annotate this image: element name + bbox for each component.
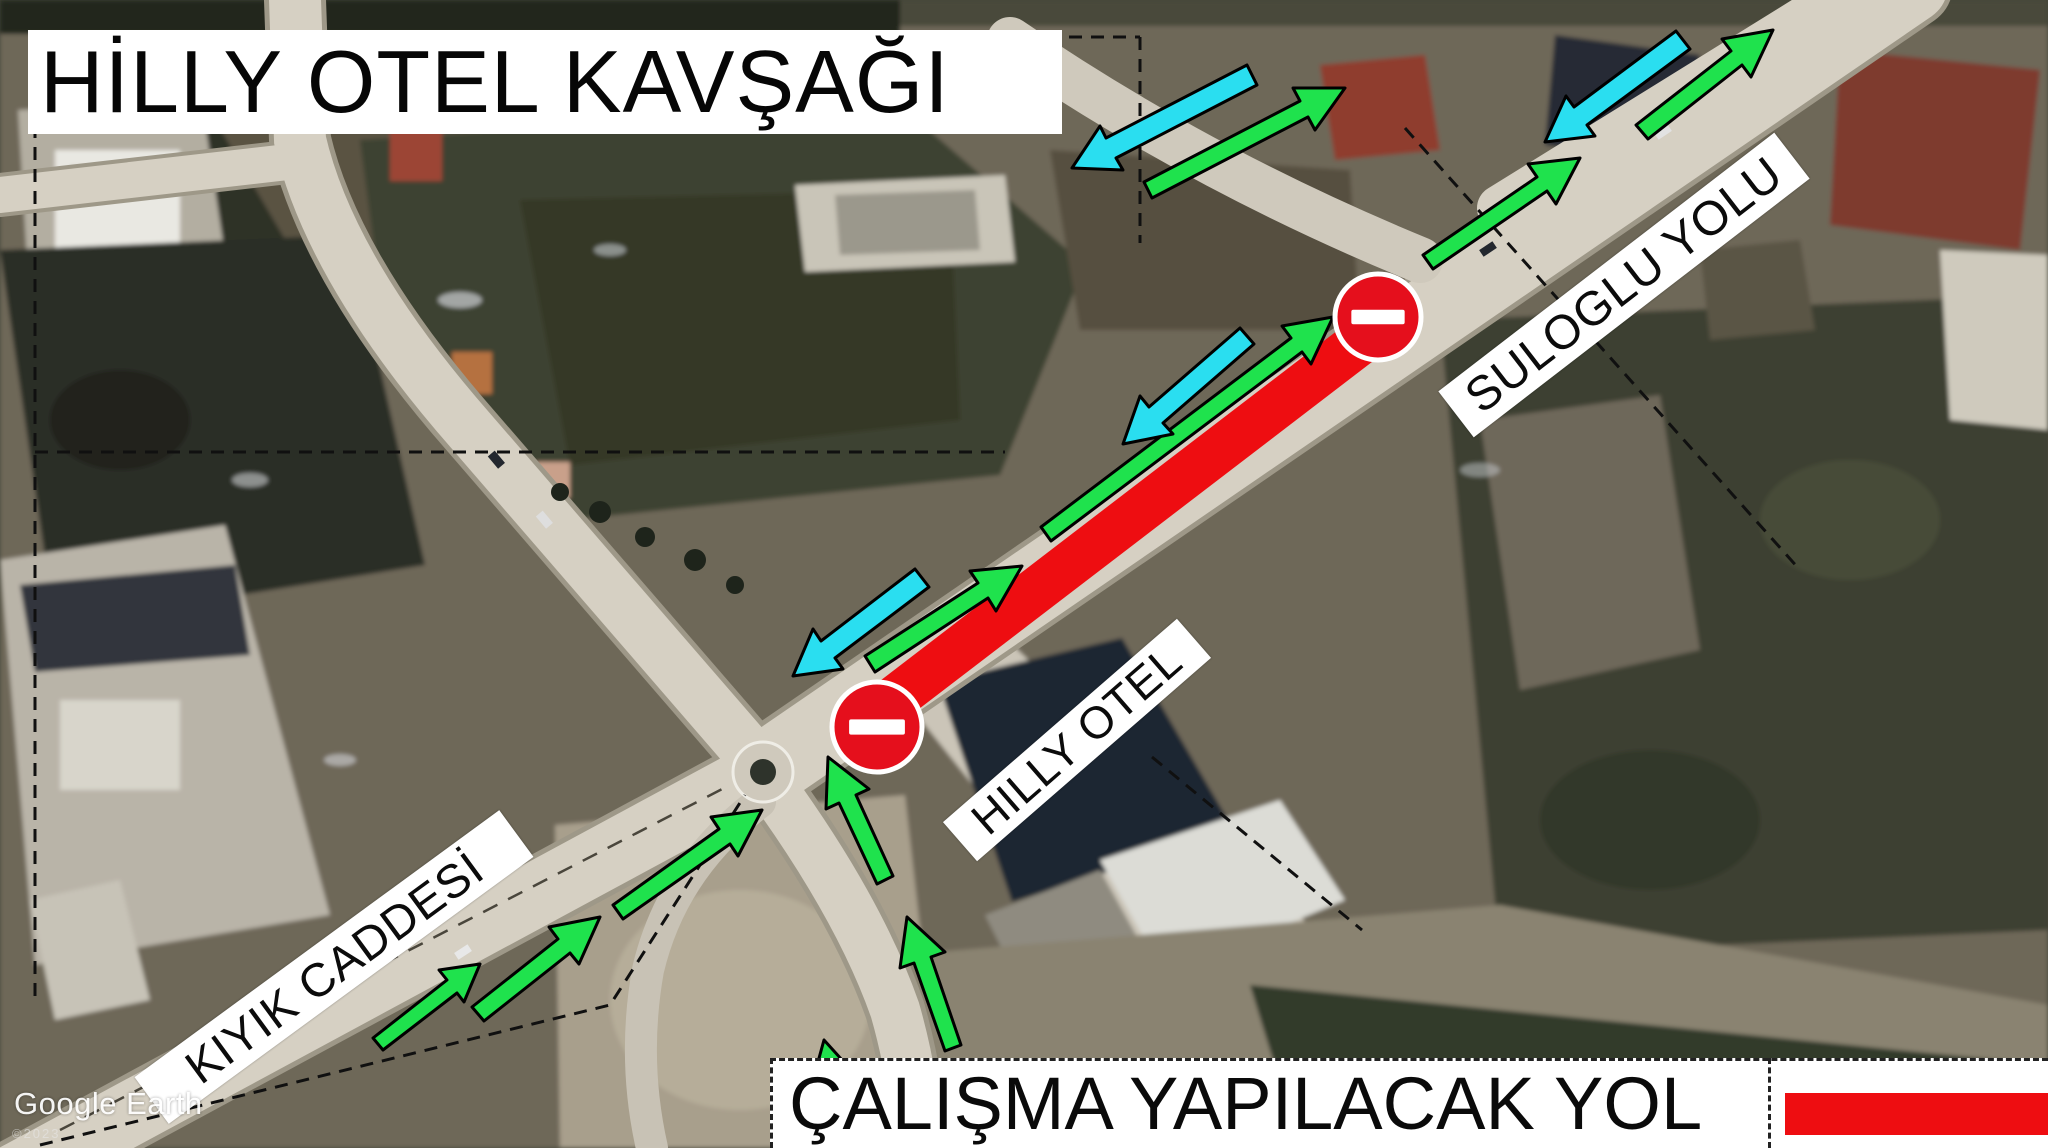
google-earth-watermark: Google Earth: [14, 1086, 203, 1122]
copyright-fineprint: ©2023: [12, 1126, 61, 1141]
no-entry-bar: [849, 719, 905, 734]
annotated-satellite-map: KIYIK CADDESİ HILLY OTEL SULOGLU YOLU Hİ…: [0, 0, 2048, 1148]
legend: ÇALIŞMA YAPILACAK YOL: [770, 1058, 2048, 1148]
no-entry-bar: [1351, 310, 1404, 325]
boundary-dash-over-legend: [1768, 1058, 1771, 1148]
legend-closed-road-swatch: [1785, 1093, 2048, 1135]
legend-label: ÇALIŞMA YAPILACAK YOL: [789, 1061, 1702, 1147]
map-title: HİLLY OTEL KAVŞAĞI: [28, 30, 1062, 134]
